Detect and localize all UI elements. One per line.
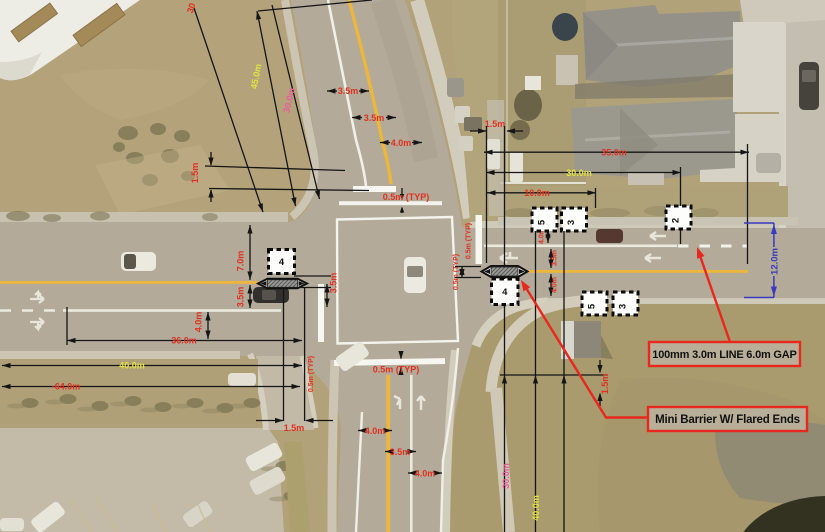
svg-text:2: 2 <box>671 218 682 223</box>
svg-text:3.5m: 3.5m <box>552 250 559 266</box>
svg-text:30.0m: 30.0m <box>566 168 592 178</box>
svg-text:0.5m (TYP): 0.5m (TYP) <box>373 365 420 375</box>
svg-text:3.5m: 3.5m <box>364 113 385 123</box>
svg-text:-64.0m: -64.0m <box>52 382 81 392</box>
svg-text:Mini Barrier W/ Flared Ends: Mini Barrier W/ Flared Ends <box>655 414 800 426</box>
svg-text:1.5m: 1.5m <box>600 374 610 395</box>
svg-text:10.0m: 10.0m <box>524 188 550 198</box>
svg-text:100mm 3.0m LINE 6.0m GAP: 100mm 3.0m LINE 6.0m GAP <box>652 349 796 361</box>
svg-text:4.0m: 4.0m <box>365 426 386 436</box>
svg-text:3.5m: 3.5m <box>390 447 411 457</box>
svg-text:3.5m: 3.5m <box>236 287 246 308</box>
svg-text:35.0m: 35.0m <box>601 148 627 158</box>
svg-text:4.0m: 4.0m <box>552 277 559 293</box>
svg-text:40.0m: 40.0m <box>119 361 145 371</box>
svg-text:30.0m: 30.0m <box>501 463 511 489</box>
svg-text:4: 4 <box>279 257 285 268</box>
svg-text:3: 3 <box>566 220 577 225</box>
svg-text:12.0m: 12.0m <box>770 248 781 275</box>
svg-text:5: 5 <box>587 303 598 309</box>
svg-text:1.5m: 1.5m <box>284 423 305 433</box>
svg-text:4.0m: 4.0m <box>391 138 412 148</box>
svg-text:1.5m: 1.5m <box>190 163 200 184</box>
svg-text:7.0m: 7.0m <box>236 251 246 272</box>
svg-text:0.5m (TYP): 0.5m (TYP) <box>466 223 473 259</box>
svg-text:4.0m: 4.0m <box>415 469 436 479</box>
svg-text:5: 5 <box>537 219 548 225</box>
svg-text:4: 4 <box>502 287 508 298</box>
svg-text:1.5m: 1.5m <box>485 119 506 129</box>
svg-text:40.0m: 40.0m <box>531 495 541 521</box>
svg-text:0.5m (TYP): 0.5m (TYP) <box>383 192 430 202</box>
svg-text:4.0m: 4.0m <box>194 312 204 333</box>
svg-text:3.5m: 3.5m <box>338 86 359 96</box>
svg-text:36.0m: 36.0m <box>171 336 197 346</box>
svg-text:0.5m (TYP): 0.5m (TYP) <box>308 356 315 392</box>
svg-text:3: 3 <box>618 304 629 309</box>
svg-text:0.5m (TYP): 0.5m (TYP) <box>453 254 460 290</box>
